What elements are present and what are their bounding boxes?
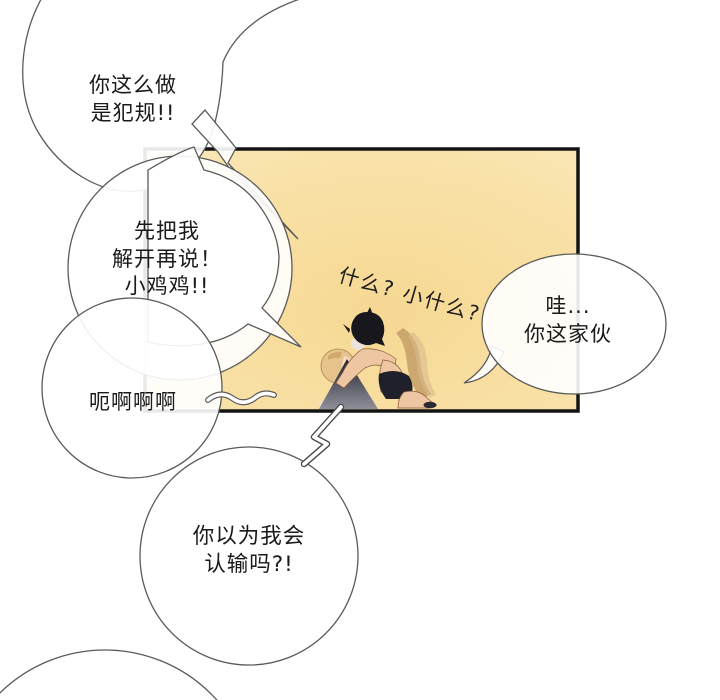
groan-bubble-line1: 呃啊啊啊 <box>89 389 177 417</box>
right-bubble-line1: 哇... <box>524 293 612 321</box>
top-bubble-line1: 你这么做 <box>89 72 177 100</box>
groan-bubble-text: 呃啊啊啊 <box>89 389 177 417</box>
right-bubble-line2: 你这家伙 <box>524 321 612 349</box>
groan-speech-bubble-shape <box>42 298 222 478</box>
comic-page: 你这么做 是犯规!! 先把我 解开再说！ 小鸡鸡!! 呃啊啊啊 哇... 你这家… <box>0 0 720 700</box>
top-bubble-line2: 是犯规!! <box>89 100 177 128</box>
left-bubble-line2: 解开再说！ <box>112 246 222 274</box>
left-bubble-line3: 小鸡鸡!! <box>112 273 222 301</box>
bottom-bubble-line2: 认输吗?! <box>193 551 306 579</box>
bottom-bubble-text: 你以为我会 认输吗?! <box>193 523 306 580</box>
left-bubble-line1: 先把我 <box>112 218 222 246</box>
right-bubble-text: 哇... 你这家伙 <box>524 293 612 348</box>
left-bubble-text: 先把我 解开再说！ 小鸡鸡!! <box>112 218 222 301</box>
bottom-bubble-line1: 你以为我会 <box>193 523 306 551</box>
top-bubble-text: 你这么做 是犯规!! <box>89 72 177 127</box>
